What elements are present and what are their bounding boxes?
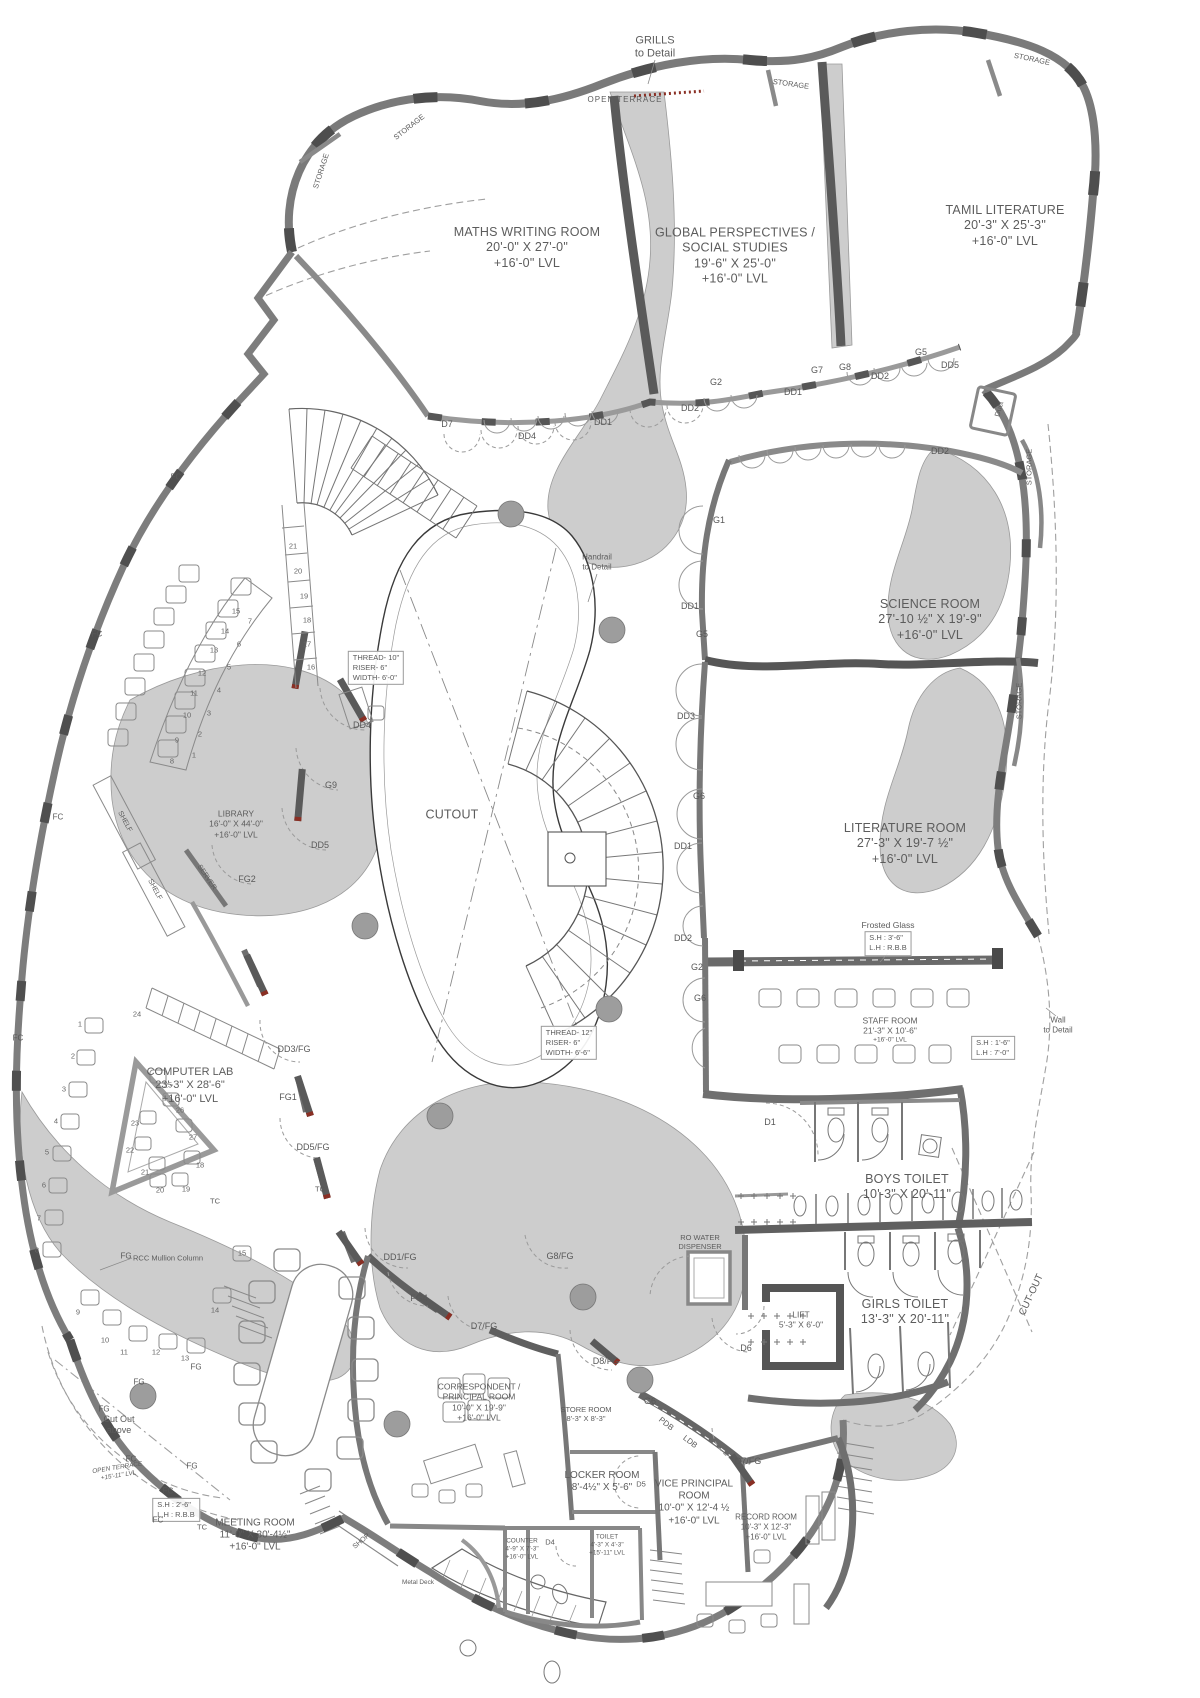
room-label-open-terrace-top: OPEN TERRACE (588, 95, 663, 105)
desk-number: 25 (164, 1081, 172, 1090)
room-dims: 5'-3" X 6'-0" (779, 1320, 823, 1330)
room-name: LOCKER ROOM (564, 1470, 639, 1482)
desk-number: 10 (101, 1336, 109, 1345)
room-name: PRINCIPAL ROOM (438, 1392, 521, 1402)
room-name: COMPUTER LAB (147, 1066, 234, 1079)
desk-number: 8 (35, 1246, 39, 1255)
room-dims: 10'-3" X 12'-3" (735, 1522, 797, 1532)
door-tag: FG2 (238, 874, 256, 884)
note-line: to Detail (1043, 1025, 1072, 1035)
room-label-cutout: CUTOUT (425, 807, 478, 822)
seat-number: 2 (198, 730, 202, 739)
room-level: +16'-0" LVL (147, 1093, 234, 1106)
shelf-number: 18 (303, 616, 311, 625)
room-level: +16'-0" LVL (505, 1553, 538, 1561)
door-tag: D6 (740, 1343, 752, 1353)
desk-number: 2 (71, 1052, 75, 1061)
note-frosted-glass: Frosted Glass S.H : 3'-6" L.H : R.B.B (862, 920, 915, 956)
desk-number: 20 (156, 1186, 164, 1195)
door-tag: DD3/FG (277, 1044, 310, 1054)
door-tag: G2 (691, 962, 703, 972)
room-dims: 27'-3" X 19'-7 ½" (844, 836, 966, 851)
room-dims: 19'-6" X 25'-0" (655, 256, 815, 271)
door-tag: G7 (811, 365, 823, 375)
door-tag: G1 (713, 515, 725, 525)
room-name: LITERATURE ROOM (844, 821, 966, 836)
room-label-boys-toilet: BOYS TOILET 10'-3" X 20'-11" (863, 1172, 951, 1203)
door-tag: DD1 (784, 387, 802, 397)
wall-tag: FG (133, 1378, 144, 1387)
seat-number: 14 (221, 627, 229, 636)
door-tag: DD1 (594, 417, 612, 427)
note-line: Wall (1043, 1015, 1072, 1025)
desk-number: 27 (189, 1133, 197, 1142)
note-line: Metal Deck (402, 1579, 434, 1587)
room-dims: 23'-3" X 28'-6" (147, 1079, 234, 1092)
room-name: SCIENCE ROOM (878, 597, 981, 612)
room-name: GIRLS TOILET (861, 1297, 949, 1312)
room-dims: 4'-3" X 4'-3" (589, 1541, 625, 1549)
note-line: above (103, 1425, 134, 1436)
note-line: WIDTH- 6'-0" (353, 673, 399, 683)
door-tag: G5 (915, 347, 927, 357)
desk-number: 3 (62, 1085, 66, 1094)
note-line: S.H : 1'-6" (976, 1038, 1010, 1048)
desk-number: 14 (211, 1306, 219, 1315)
room-name: VICE PRINCIPAL (655, 1479, 733, 1491)
shelf-number: 16 (307, 663, 315, 672)
seat-number: 15 (232, 607, 240, 616)
room-level: +16'-0" LVL (844, 852, 966, 867)
room-label-maths-writing: MATHS WRITING ROOM 20'-0" X 27'-0" +16'-… (454, 225, 600, 271)
desk-number: 23 (131, 1119, 139, 1128)
door-tag: G8/FG (546, 1251, 573, 1261)
door-tag: DD2 (681, 403, 699, 413)
note-line: STORAGE (1024, 449, 1033, 486)
note-line: to Detail (635, 48, 675, 61)
room-name: OPEN TERRACE (588, 95, 663, 105)
wall-tag: FC (53, 813, 64, 822)
door-tag: DD2 (674, 933, 692, 943)
note-staff-sill: S.H : 1'-6" L.H : 7'-0" (971, 1036, 1015, 1060)
room-label-vice-principal: VICE PRINCIPAL ROOM 10'-0" X 12'-4 ½ +16… (655, 1479, 733, 1528)
desk-number: 9 (76, 1308, 80, 1317)
shelf-number: 20 (294, 567, 302, 576)
door-tag: DD4 (518, 431, 536, 441)
room-dims: 27'-10 ½" X 19'-9" (878, 612, 981, 627)
door-tag: G8 (839, 362, 851, 372)
room-label-tamil-literature: TAMIL LITERATURE 20'-3" X 25'-3" +16'-0"… (946, 203, 1065, 249)
note-line: RISER- 6" (353, 663, 399, 673)
room-name: TAMIL LITERATURE (946, 203, 1065, 218)
room-label-meeting: MEETING ROOM 11'-0" X 30'-4½" +16'-0" LV… (215, 1518, 294, 1555)
room-dims: 10'-0" X 19'-9" (438, 1402, 521, 1412)
room-label-library: LIBRARY 16'-0" X 44'-0" +16'-0" LVL (209, 808, 263, 839)
floor-plan-canvas: MATHS WRITING ROOM 20'-0" X 27'-0" +16'-… (0, 0, 1200, 1698)
wall-tag: FC (13, 1034, 24, 1043)
desk-number: 21 (141, 1168, 149, 1177)
door-tag: DD5 (941, 360, 959, 370)
room-dims: 11'-0" X 30'-4½" (215, 1530, 294, 1542)
door-tag: FG1 (279, 1092, 297, 1102)
note-rcc-mullion: RCC Mullion Column (133, 1253, 203, 1262)
room-dims: 21'-3" X 10'-6" (862, 1026, 917, 1036)
note-grills: GRILLS to Detail (635, 35, 675, 62)
room-label-staff: STAFF ROOM 21'-3" X 10'-6" +16'-0" LVL (862, 1016, 917, 1045)
note-line: DISPENSER (678, 1242, 721, 1251)
door-tag: G6 (644, 1396, 656, 1406)
room-label-correspondent: CORRESPONDENT / PRINCIPAL ROOM 10'-0" X … (438, 1381, 521, 1422)
room-dims: 13'-3" X 20'-11" (861, 1312, 949, 1327)
door-tag: TC (197, 1523, 207, 1532)
room-name: STAFF ROOM (862, 1016, 917, 1026)
room-name: LIBRARY (209, 808, 263, 818)
note-storage-6: STORAGE (1014, 683, 1023, 720)
room-label-locker: LOCKER ROOM 8'-4½" X 5'-6" (564, 1470, 639, 1494)
room-label-computer-lab: COMPUTER LAB 23'-3" X 28'-6" +16'-0" LVL (147, 1066, 234, 1106)
door-tag: D7/FG (735, 1456, 762, 1466)
room-label-literature: LITERATURE ROOM 27'-3" X 19'-7 ½" +16'-0… (844, 821, 966, 867)
seat-number: 4 (217, 686, 221, 695)
note-line: to Detail (582, 562, 612, 572)
room-name: COUNTER (505, 1537, 538, 1545)
note-title: Frosted Glass (862, 920, 915, 930)
seat-number: 8 (170, 757, 174, 766)
shelf-number: 19 (300, 592, 308, 601)
seat-number: 11 (190, 689, 198, 698)
note-line: THREAD- 10" (353, 653, 399, 663)
room-label-toilet-small: TOILET 4'-3" X 4'-3" +15'-11" LVL (589, 1533, 625, 1556)
door-tag: DD1 (681, 601, 699, 611)
room-name: MEETING ROOM (215, 1518, 294, 1530)
door-tag: G9 (325, 780, 337, 790)
room-name: SOCIAL STUDIES (655, 241, 815, 256)
wall-tag: FG (120, 1252, 131, 1261)
room-dims: 20'-0" X 27'-0" (454, 240, 600, 255)
door-tag: DD1 (674, 841, 692, 851)
shelf-number: 17 (303, 640, 311, 649)
room-dims: 8'-3" X 8'-3" (560, 1414, 611, 1423)
room-level: +16'-0" LVL (878, 628, 981, 643)
note-line: GRILLS (635, 35, 675, 48)
room-level: +16'-0" LVL (438, 1412, 521, 1422)
room-level: +15'-11" LVL (589, 1549, 625, 1557)
room-name: RECORD ROOM (735, 1512, 797, 1522)
room-dims: 16'-0" X 44'-0" (209, 819, 263, 829)
room-level: +16'-0" LVL (215, 1542, 294, 1554)
desk-number: 26 (176, 1106, 184, 1115)
wall-tag: FG (186, 1462, 197, 1471)
seat-number: 7 (248, 617, 252, 626)
desk-number: 11 (120, 1348, 128, 1357)
desk-number: 1 (78, 1020, 82, 1029)
wall-tag: FC (163, 1487, 174, 1496)
note-line: S.H : 3'-6" (869, 934, 907, 944)
desk-number: 6 (42, 1181, 46, 1190)
room-level: +16'-0" LVL (862, 1036, 917, 1044)
room-dims: 8'-4½" X 5'-6" (564, 1482, 639, 1494)
door-tag: TC (315, 1185, 325, 1194)
room-level: +16'-0" LVL (209, 829, 263, 839)
note-wall-to-detail: Wall to Detail (1043, 1015, 1072, 1035)
note-line: WIDTH- 6'-6" (546, 1048, 592, 1058)
desk-number: 7 (37, 1214, 41, 1223)
room-label-global-perspectives: GLOBAL PERSPECTIVES / SOCIAL STUDIES 19'… (655, 226, 815, 287)
note-cutout-above: Cut Out above (103, 1414, 134, 1436)
note-line: Cut Out (103, 1414, 134, 1425)
seat-number: 12 (198, 669, 206, 678)
door-tag: D4 (545, 1538, 555, 1547)
note-line: L.H : 7'-0" (976, 1048, 1010, 1058)
room-name: BOYS TOILET (863, 1172, 951, 1187)
note-line: RO WATER (678, 1233, 721, 1242)
door-tag: DD2 (871, 371, 889, 381)
door-tag: G6 (693, 791, 705, 801)
room-level: +16'-0" LVL (655, 1515, 733, 1527)
door-tag: FG4 (410, 1293, 428, 1303)
desk-number: 5 (45, 1148, 49, 1157)
door-tag: DD2 (931, 446, 949, 456)
note-metal-deck: Metal Deck (402, 1579, 434, 1587)
room-name: GLOBAL PERSPECTIVES / (655, 226, 815, 241)
note-handrail: Handrail to Detail (582, 552, 612, 572)
wall-tag: FC (92, 630, 103, 639)
room-label-store: STORE ROOM 8'-3" X 8'-3" (560, 1405, 611, 1423)
seat-number: 3 (207, 709, 211, 718)
desk-number: 12 (152, 1348, 160, 1357)
room-label-girls-toilet: GIRLS TOILET 13'-3" X 20'-11" (861, 1297, 949, 1328)
note-storage-5: STORAGE (1024, 449, 1033, 486)
note-line: L.H : R.B.B (869, 944, 907, 954)
seat-number: 9 (175, 736, 179, 745)
desk-number: 15 (238, 1249, 246, 1258)
seat-number: 5 (227, 663, 231, 672)
door-tag: G2 (710, 377, 722, 387)
room-dims: 10'-0" X 12'-4 ½ (655, 1503, 733, 1515)
door-tag: D1 (764, 1117, 776, 1127)
room-name: CUTOUT (425, 807, 478, 822)
door-tag: D5 (636, 1480, 646, 1489)
desk-number: 24 (133, 1010, 141, 1019)
wall-tag: FC (126, 1455, 137, 1464)
desk-number: 22 (126, 1146, 134, 1155)
seat-number: 6 (237, 640, 241, 649)
note-stair-lower: THREAD- 12" RISER- 6" WIDTH- 6'-6" (541, 1026, 597, 1060)
room-label-counter: COUNTER 4'-9" X 7'-3" +16'-0" LVL (505, 1537, 538, 1560)
room-label-science: SCIENCE ROOM 27'-10 ½" X 19'-9" +16'-0" … (878, 597, 981, 643)
room-level: +16'-0" LVL (946, 234, 1065, 249)
room-name: MATHS WRITING ROOM (454, 225, 600, 240)
room-label-lift: LIFT 5'-3" X 6'-0" (779, 1310, 823, 1331)
note-line: RISER- 6" (546, 1038, 592, 1048)
note-line: RCC Mullion Column (133, 1253, 203, 1262)
note-line: Handrail (582, 552, 612, 562)
room-level: +16'-0" LVL (454, 256, 600, 271)
room-name: LIFT (779, 1310, 823, 1320)
door-tag: G6 (694, 993, 706, 1003)
door-tag: D7/FG (471, 1321, 498, 1331)
seat-number: 10 (183, 711, 191, 720)
door-tag: DD4 (353, 720, 371, 730)
desk-number: 18 (196, 1161, 204, 1170)
room-dims: 20'-3" X 25'-3" (946, 218, 1065, 233)
shelf-number: 21 (289, 542, 297, 551)
room-name: STORE ROOM (560, 1405, 611, 1414)
door-tag: DD3 (677, 711, 695, 721)
wall-tag: FG (190, 1363, 201, 1372)
desk-number: 13 (181, 1354, 189, 1363)
wall-tag: FC (153, 1516, 164, 1525)
desk-number: 4 (54, 1117, 58, 1126)
door-tag: DD1/FG (383, 1252, 416, 1262)
room-dims: 10'-3" X 20'-11" (863, 1187, 951, 1202)
desk-number: 19 (182, 1185, 190, 1194)
seat-number: 13 (210, 646, 218, 655)
door-tag: DD5/FG (296, 1142, 329, 1152)
room-name: ROOM (655, 1491, 733, 1503)
room-name: CORRESPONDENT / (438, 1381, 521, 1391)
door-tag: G5 (696, 629, 708, 639)
note-line: THREAD- 12" (546, 1028, 592, 1038)
door-tag: D8/FG (593, 1356, 620, 1366)
note-stair-upper: THREAD- 10" RISER- 6" WIDTH- 6'-0" (348, 651, 404, 685)
door-tag: D7 (441, 419, 453, 429)
cutout-shape (370, 510, 607, 1087)
room-dims: 4'-9" X 7'-3" (505, 1545, 538, 1553)
room-name: TOILET (589, 1533, 625, 1541)
room-level: +16'-0" LVL (735, 1532, 797, 1542)
wall-tag: FC (171, 473, 182, 482)
door-tag: DD5 (311, 840, 329, 850)
wall-tag: FG (98, 1405, 109, 1414)
room-level: +16'-0" LVL (655, 271, 815, 286)
room-label-record: RECORD ROOM 10'-3" X 12'-3" +16'-0" LVL (735, 1512, 797, 1541)
door-tag: TC (210, 1197, 220, 1206)
note-ro-water: RO WATER DISPENSER (678, 1233, 721, 1251)
note-line: STORAGE (1014, 683, 1023, 720)
seat-number: 1 (192, 751, 196, 760)
note-line: S.H : 2'-6" (157, 1500, 195, 1510)
